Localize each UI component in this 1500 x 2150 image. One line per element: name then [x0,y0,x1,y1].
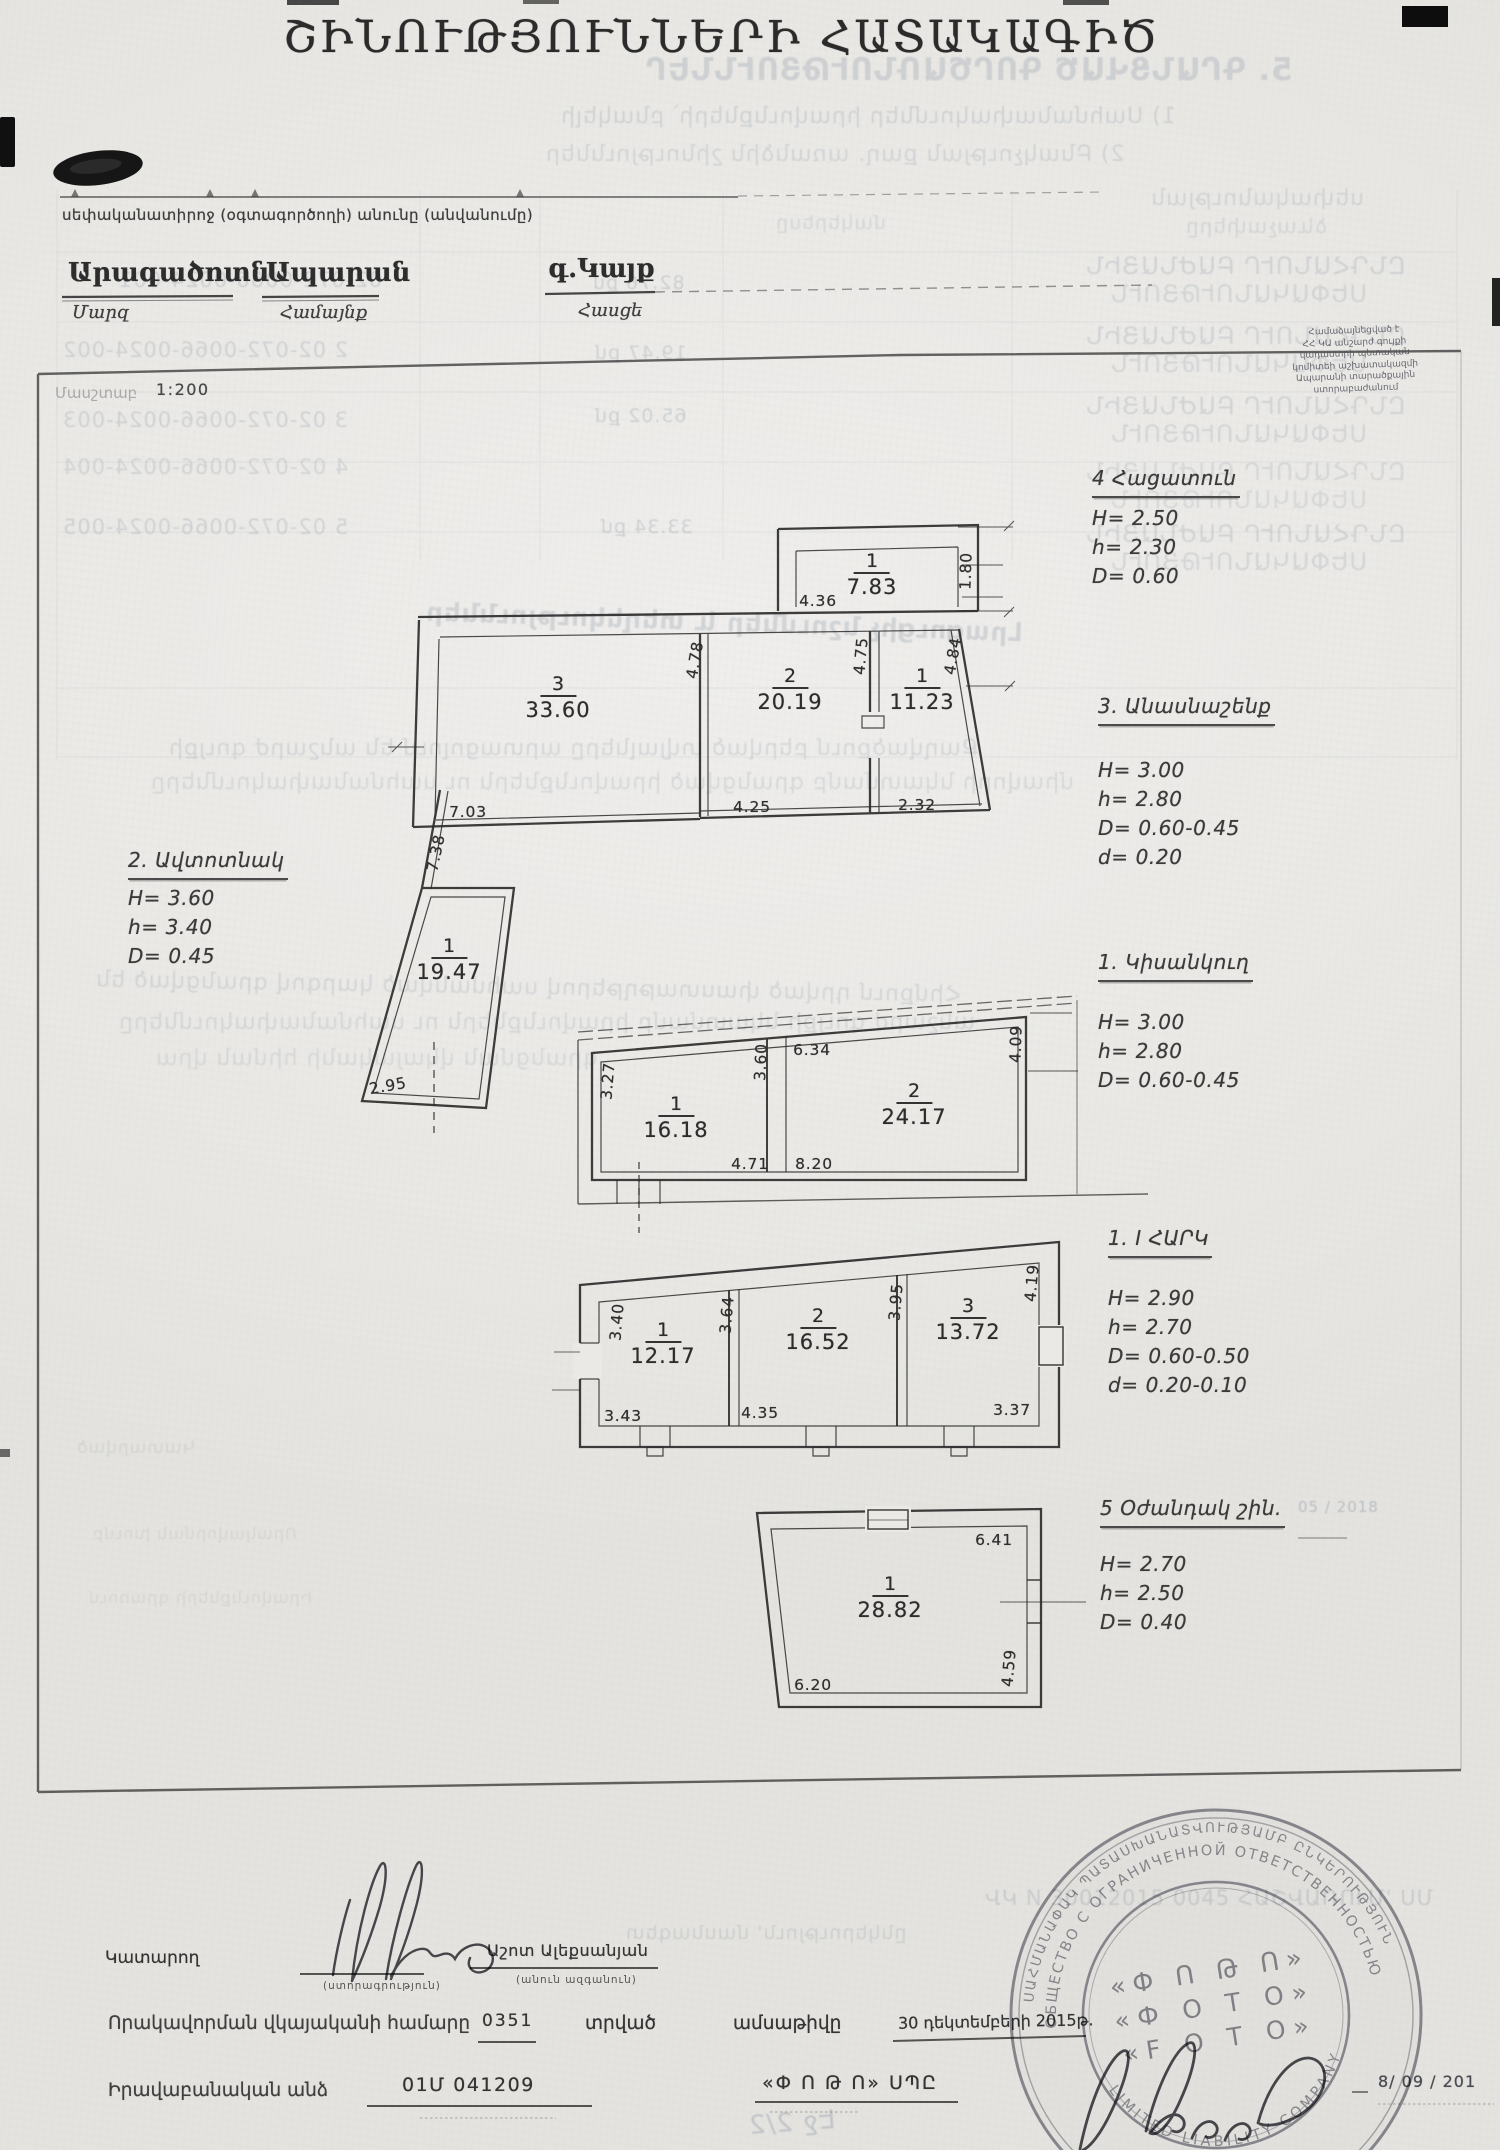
left-edge-mark [0,117,15,167]
top-edge-mark [1063,0,1109,5]
top-edge-mark [523,0,559,4]
ink-blob [51,146,144,191]
scan-artifacts [0,0,1500,2150]
top-edge-mark [287,0,339,5]
left-edge-mark [0,1449,10,1457]
right-edge-mark [1492,278,1500,326]
top-right-mark [1402,6,1448,27]
